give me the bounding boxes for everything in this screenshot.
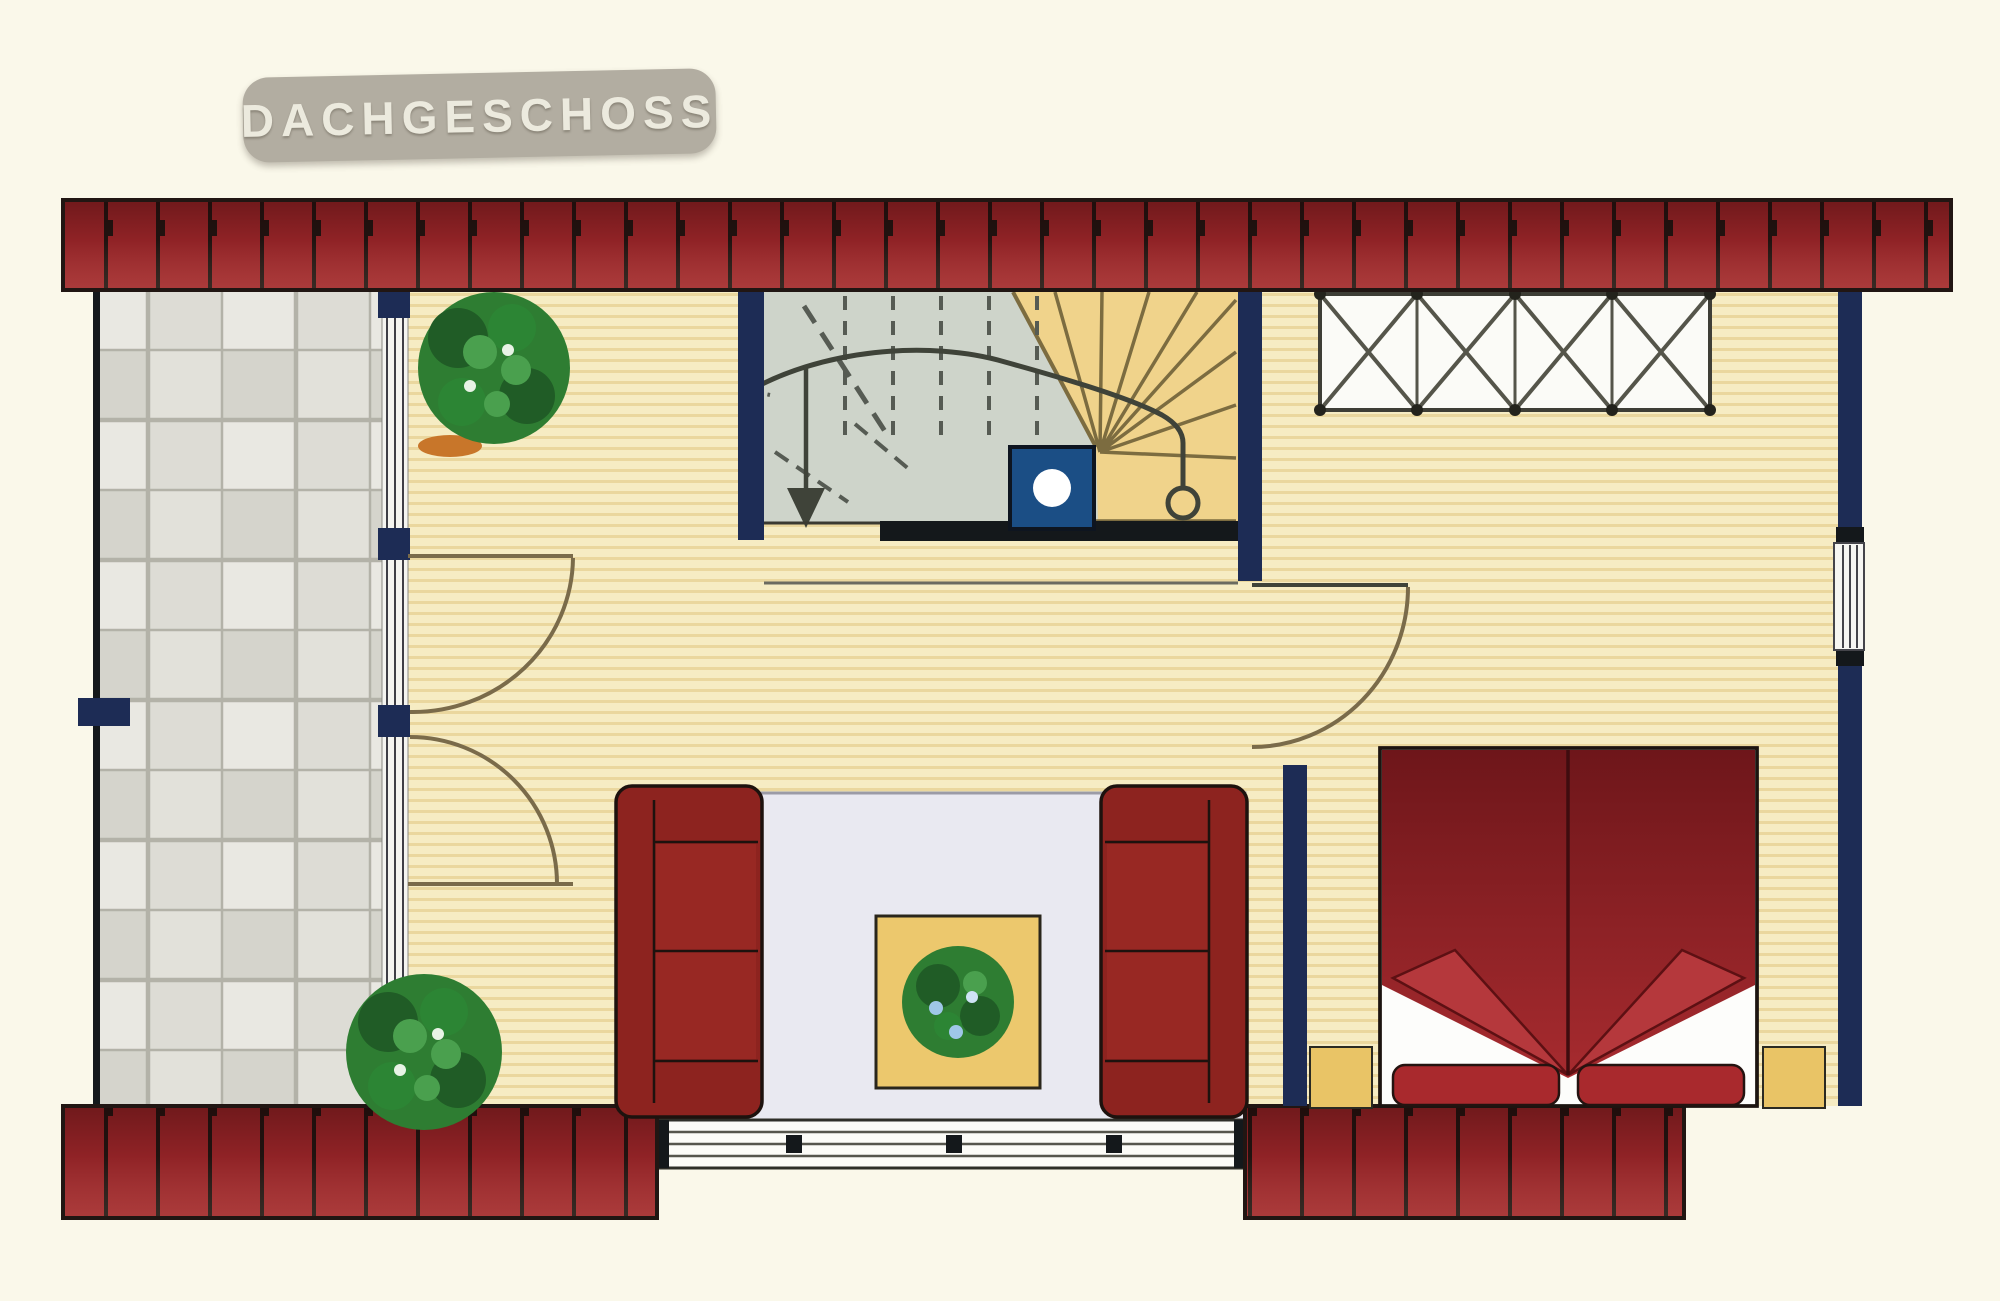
terrace-floor <box>96 290 408 1106</box>
chimney-marker <box>1010 447 1094 529</box>
nightstand-right <box>1763 1047 1825 1108</box>
floor-label: DACHGESCHOSS <box>240 84 719 148</box>
roof-band-bottom-left <box>63 1106 657 1218</box>
nightstand-left <box>1310 1047 1372 1108</box>
railing-x-band <box>1314 288 1716 416</box>
bedroom-wall-left <box>1283 765 1307 1106</box>
sofa-right <box>1101 786 1247 1117</box>
plant-bottom <box>346 974 502 1130</box>
floor-label-badge: DACHGESCHOSS <box>242 68 717 163</box>
terrace-wall-pier <box>78 698 130 726</box>
floor-plan-page: DACHGESCHOSS <box>0 0 2000 1301</box>
floor-plan-drawing <box>0 0 2000 1301</box>
exterior-wall-right <box>1836 290 1864 1106</box>
window-living-room <box>658 1120 1245 1168</box>
window-right-wall <box>1834 543 1864 650</box>
stair-wall-right <box>1238 290 1262 581</box>
bed <box>1380 748 1757 1106</box>
stair-wall-left <box>738 290 764 540</box>
pillow-right <box>1578 1065 1744 1105</box>
table-plant <box>902 946 1014 1058</box>
sofa-left <box>616 786 762 1117</box>
pillow-left <box>1393 1065 1559 1105</box>
roof-band-bottom-right <box>1245 1106 1684 1218</box>
roof-band-top <box>63 200 1951 290</box>
